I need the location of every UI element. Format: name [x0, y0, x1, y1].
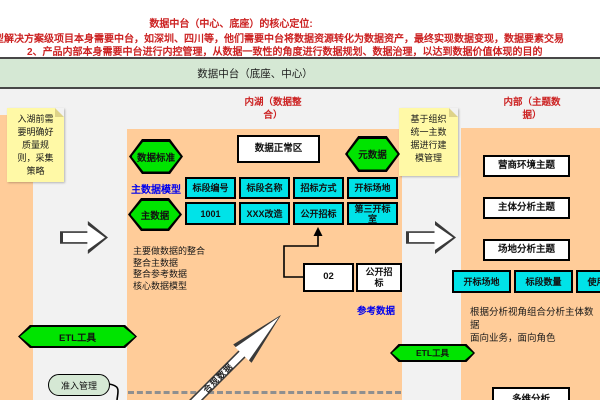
topic-box-subject-analysis[interactable]: 主体分析主题	[483, 197, 570, 219]
table-cell[interactable]: XXX改造	[239, 202, 290, 225]
access-management-pill[interactable]: 准入管理	[48, 374, 110, 396]
title-band-label: 数据中台（底座、中心）	[0, 66, 510, 81]
flow-arrow-into-lake-icon	[60, 221, 108, 254]
table-header-cell[interactable]: 标段名称	[239, 177, 290, 199]
reference-data-label: 参考数据	[357, 303, 395, 317]
dashed-separator	[128, 391, 401, 394]
dimension-cell[interactable]: 标段数量	[514, 270, 573, 293]
sticky-note-modeling[interactable]: 基于组织 统一主数 据进行建 模管理	[399, 108, 458, 176]
ref-value-box[interactable]: 公开招 标	[356, 263, 402, 292]
table-cell[interactable]: 公开招标	[293, 202, 344, 225]
diagram-canvas: 数据中台（中心、底座）的核心定位: 型解决方案级项目本身需要中台，如深圳、四川等…	[0, 0, 600, 400]
sticky-note-quality-rules-text: 入湖前需 要明确好 质量规 则，采集 策略	[7, 113, 64, 178]
sticky-note-modeling-text: 基于组织 统一主数 据进行建 模管理	[399, 113, 458, 165]
etl-tool-right[interactable]: ETL工具	[390, 344, 475, 362]
master-data-model-label: 主数据模型	[131, 181, 181, 196]
dimension-cell[interactable]: 开标场地	[452, 270, 511, 293]
master-data-table[interactable]: 标段编号 标段名称 招标方式 开标场地 1001 XXX改造 公开招标 第三开标…	[185, 177, 398, 225]
subject-description: 根据分析视角组合分析主体数 据 面向业务，面向角色	[470, 306, 594, 345]
inner-lake-zone-label: 内湖（数据整 合）	[228, 96, 318, 122]
etl-tool-left[interactable]: ETL工具	[18, 325, 137, 348]
dimension-row: 开标场地 标段数量 使用频次	[452, 270, 600, 293]
topic-box-site-analysis[interactable]: 场地分析主题	[483, 239, 570, 261]
table-data-row: 1001 XXX改造 公开招标 第三开标 室	[185, 202, 398, 225]
table-cell[interactable]: 第三开标 室	[347, 202, 398, 225]
hexagon-metadata[interactable]: 元数据	[345, 136, 400, 172]
hexagon-data-standard[interactable]: 数据标准	[129, 139, 183, 174]
data-normal-zone-box[interactable]: 数据正常区	[237, 135, 320, 163]
table-header-row: 标段编号 标段名称 招标方式 开标场地	[185, 177, 398, 199]
topic-box-business-env[interactable]: 营商环境主题	[483, 155, 570, 177]
multidim-analysis-box[interactable]: 多维分析	[492, 387, 570, 400]
table-header-cell[interactable]: 招标方式	[293, 177, 344, 199]
flow-arrow-lake-to-subject-icon	[406, 221, 456, 254]
hexagon-master-data[interactable]: 主数据	[128, 198, 182, 231]
table-cell[interactable]: 1001	[185, 202, 236, 225]
subject-zone-label: 内部（主题数 据）	[487, 96, 577, 122]
sticky-note-quality-rules[interactable]: 入湖前需 要明确好 质量规 则，采集 策略	[7, 108, 64, 182]
title-band: 数据中台（底座、中心）	[0, 57, 600, 89]
table-header-cell[interactable]: 标段编号	[185, 177, 236, 199]
core-positioning-title: 数据中台（中心、底座）的核心定位:	[0, 15, 462, 30]
integration-notes: 主要做数据的整合 整合主数据 整合参考数据 核心数据模型	[133, 246, 205, 292]
table-header-cell[interactable]: 开标场地	[347, 177, 398, 199]
dimension-cell[interactable]: 使用频次	[576, 270, 600, 293]
ref-code-box[interactable]: 02	[303, 263, 354, 292]
core-positioning-point2: 2、产品内部本身需要中台进行内控管理，从数据一致性的角度进行数据规划、数据治理，…	[27, 43, 543, 58]
